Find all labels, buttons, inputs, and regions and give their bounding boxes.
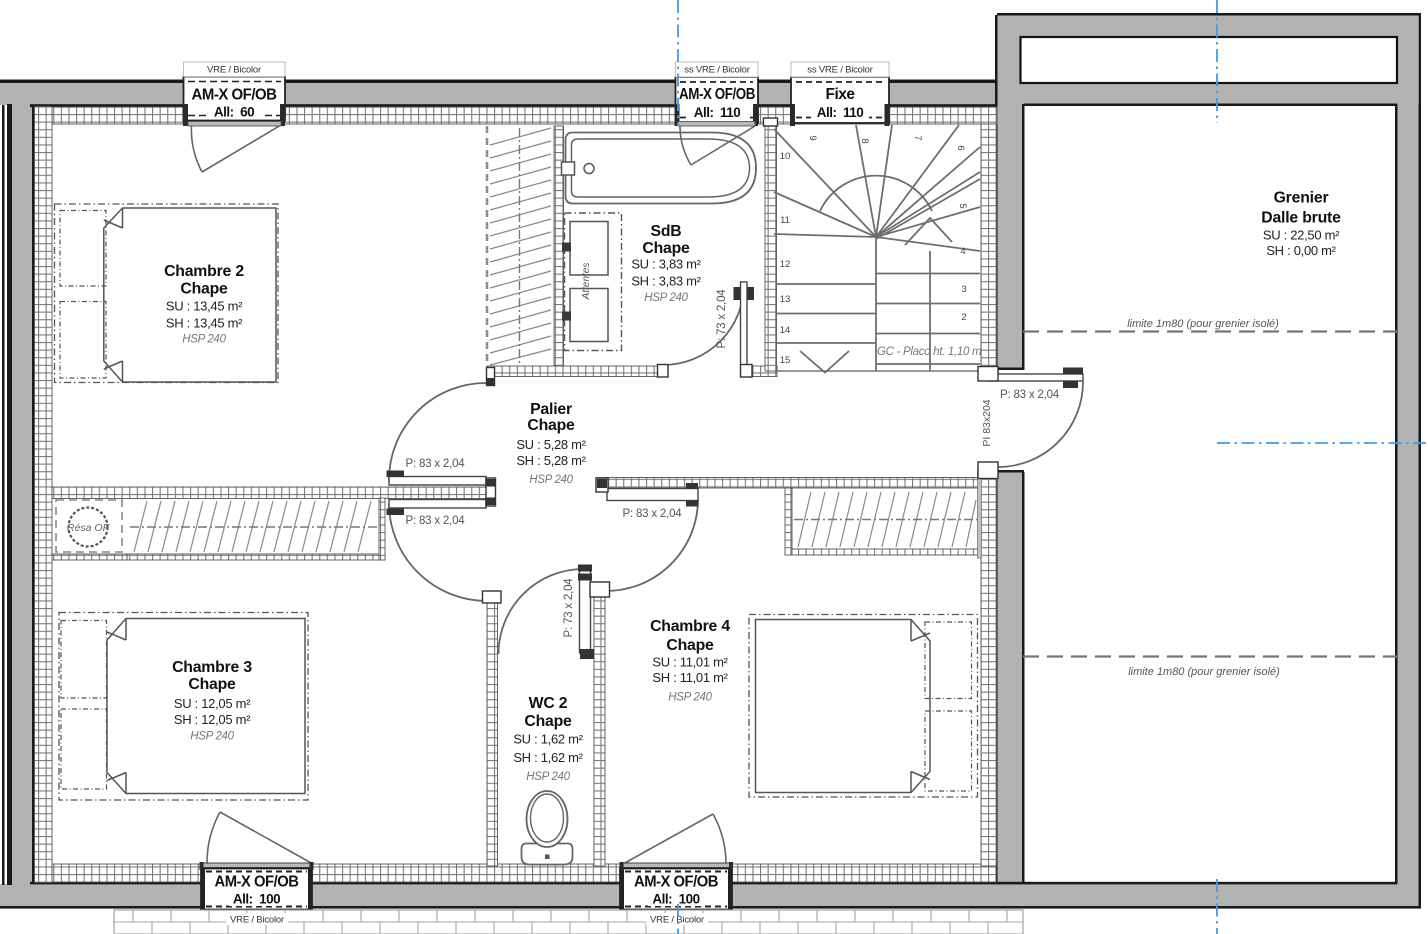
svg-text:SH : 5,28 m²: SH : 5,28 m² (516, 453, 586, 468)
svg-text:SU : 11,01 m²: SU : 11,01 m² (652, 655, 728, 670)
svg-text:Grenier: Grenier (1274, 190, 1329, 207)
svg-text:AM-X OF/OB: AM-X OF/OB (192, 87, 277, 104)
svg-text:All: 110: All: 110 (817, 105, 864, 120)
svg-text:Chape: Chape (188, 676, 236, 693)
svg-text:15: 15 (780, 355, 791, 366)
svg-text:Attentes: Attentes (581, 263, 592, 301)
svg-text:Chape: Chape (642, 240, 690, 257)
svg-text:SU : 22,50 m²: SU : 22,50 m² (1263, 228, 1340, 243)
svg-text:ss VRE / Bicolor: ss VRE / Bicolor (807, 65, 872, 76)
svg-text:VRE / Bicolor: VRE / Bicolor (207, 65, 261, 76)
svg-text:WC 2: WC 2 (529, 695, 568, 712)
svg-text:SH : 1,62 m²: SH : 1,62 m² (513, 750, 583, 765)
svg-text:9: 9 (807, 135, 818, 140)
svg-text:Palier: Palier (530, 401, 572, 418)
svg-text:PI 83x204: PI 83x204 (981, 399, 993, 446)
svg-text:14: 14 (780, 325, 791, 336)
svg-text:HSP 240: HSP 240 (190, 731, 234, 743)
svg-text:SH : 3,83 m²: SH : 3,83 m² (631, 274, 701, 289)
svg-text:SH : 11,01 m²: SH : 11,01 m² (652, 670, 728, 685)
svg-text:SH : 12,05 m²: SH : 12,05 m² (174, 712, 251, 727)
svg-text:SU : 12,05 m²: SU : 12,05 m² (174, 696, 251, 711)
svg-text:SU : 1,62 m²: SU : 1,62 m² (513, 732, 583, 747)
svg-text:6: 6 (955, 145, 966, 150)
svg-text:8: 8 (859, 138, 870, 143)
svg-text:SH : 0,00 m²: SH : 0,00 m² (1266, 243, 1336, 258)
svg-text:P: 73 x 2,04: P: 73 x 2,04 (563, 578, 575, 638)
svg-text:2: 2 (961, 312, 966, 323)
svg-text:P: 83 x 2,04: P: 83 x 2,04 (1000, 389, 1060, 401)
svg-text:VRE / Bicolor: VRE / Bicolor (230, 915, 284, 926)
svg-text:HSP 240: HSP 240 (668, 692, 712, 704)
svg-text:HSP 240: HSP 240 (529, 474, 573, 486)
svg-text:All: 100: All: 100 (652, 892, 699, 907)
svg-text:P: 83 x 2,04: P: 83 x 2,04 (623, 508, 683, 520)
svg-text:P: 83 x 2,04: P: 83 x 2,04 (406, 458, 466, 470)
svg-text:Chape: Chape (180, 281, 228, 298)
svg-text:limite 1m80 (pour grenier isol: limite 1m80 (pour grenier isolé) (1127, 318, 1279, 330)
svg-text:HSP 240: HSP 240 (526, 771, 570, 783)
svg-text:3: 3 (961, 284, 966, 295)
svg-text:ss VRE / Bicolor: ss VRE / Bicolor (684, 65, 749, 76)
svg-text:Chape: Chape (524, 713, 572, 730)
svg-text:Chambre 4: Chambre 4 (650, 618, 730, 635)
svg-text:13: 13 (780, 294, 791, 305)
svg-text:Chambre 3: Chambre 3 (172, 659, 252, 676)
svg-text:HSP 240: HSP 240 (182, 334, 226, 346)
svg-text:12: 12 (780, 259, 791, 270)
svg-text:7: 7 (912, 135, 923, 140)
svg-text:Résa OF: Résa OF (67, 522, 110, 534)
svg-text:SU : 5,28 m²: SU : 5,28 m² (516, 437, 586, 452)
svg-text:P: 83 x 2,04: P: 83 x 2,04 (406, 515, 466, 527)
svg-text:AM-X OF/OB: AM-X OF/OB (215, 874, 299, 891)
svg-text:Dalle brute: Dalle brute (1261, 210, 1341, 227)
svg-text:SdB: SdB (651, 223, 682, 240)
svg-text:Chape: Chape (527, 417, 575, 434)
svg-text:P: 73 x 2,04: P: 73 x 2,04 (716, 289, 728, 349)
svg-text:Chambre 2: Chambre 2 (164, 263, 244, 280)
svg-text:Chape: Chape (666, 637, 714, 654)
svg-text:All: 60: All: 60 (214, 105, 254, 120)
svg-text:4: 4 (960, 246, 965, 257)
svg-text:All: 110: All: 110 (694, 105, 741, 120)
svg-text:HSP 240: HSP 240 (644, 292, 688, 304)
svg-text:All: 100: All: 100 (233, 892, 280, 907)
svg-text:Fixe: Fixe (825, 86, 855, 103)
svg-text:limite 1m80 (pour grenier isol: limite 1m80 (pour grenier isolé) (1128, 666, 1280, 678)
svg-text:SH : 13,45 m²: SH : 13,45 m² (166, 316, 243, 331)
svg-text:GC - Placo ht. 1,10 m: GC - Placo ht. 1,10 m (877, 346, 982, 358)
svg-text:AM-X OF/OB: AM-X OF/OB (634, 874, 718, 891)
svg-text:AM-X OF/OB: AM-X OF/OB (679, 86, 755, 103)
svg-text:VRE / Bicolor: VRE / Bicolor (650, 915, 704, 926)
svg-text:SU : 13,45 m²: SU : 13,45 m² (166, 299, 243, 314)
svg-text:SU : 3,83 m²: SU : 3,83 m² (631, 257, 701, 272)
svg-text:5: 5 (957, 203, 968, 208)
svg-text:11: 11 (780, 215, 790, 226)
svg-text:10: 10 (780, 151, 791, 162)
